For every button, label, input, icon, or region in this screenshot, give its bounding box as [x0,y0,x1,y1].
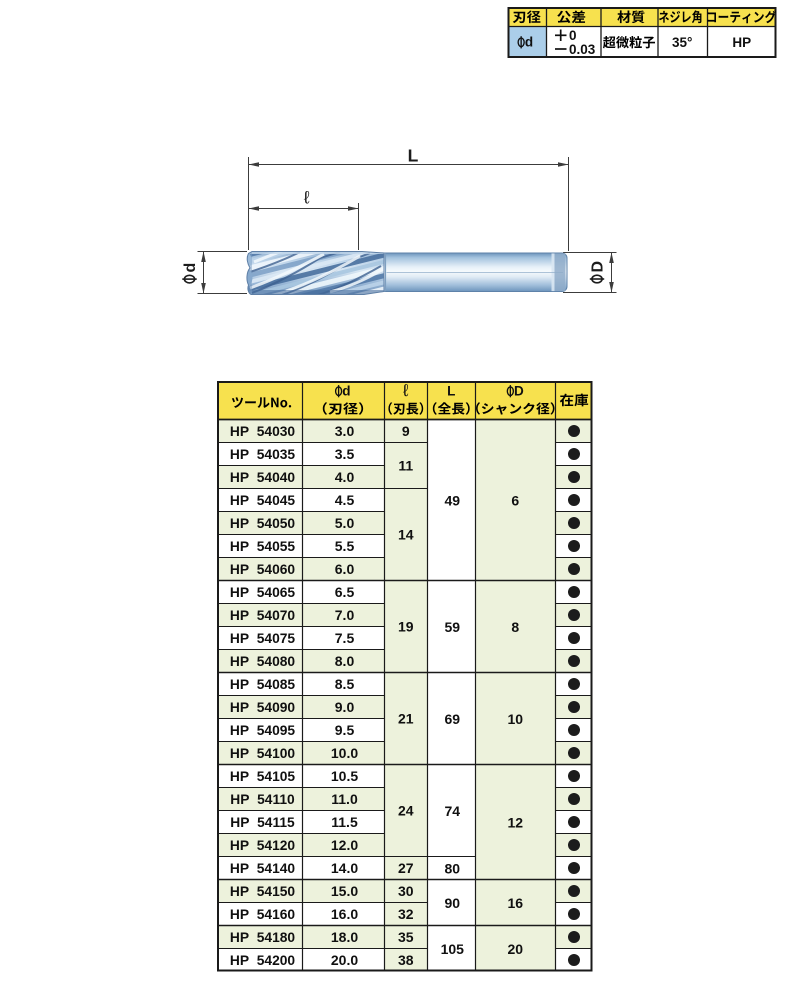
svg-text:18.0: 18.0 [331,929,358,945]
svg-text:27: 27 [398,860,414,876]
svg-text:6.5: 6.5 [335,584,355,600]
svg-text:d: d [525,35,533,50]
svg-text:5.0: 5.0 [335,515,355,531]
svg-text:4.5: 4.5 [335,492,355,508]
svg-text:80: 80 [444,860,460,876]
svg-text:D: D [514,384,524,399]
svg-text:8.5: 8.5 [335,676,355,692]
svg-text:16: 16 [507,895,523,911]
svg-text:38: 38 [398,952,414,968]
svg-text:HP 54040: HP 54040 [230,470,296,485]
svg-text:6: 6 [511,492,519,508]
svg-text:HP 54055: HP 54055 [230,539,296,554]
svg-text:21: 21 [398,710,414,726]
svg-text:HP 54160: HP 54160 [230,907,296,922]
svg-text:HP: HP [732,35,751,50]
svg-text:ℓ: ℓ [304,188,310,208]
svg-text:HP 54070: HP 54070 [230,608,296,623]
svg-text:L: L [408,146,419,166]
svg-text:20.0: 20.0 [331,952,358,968]
svg-text:HP 54090: HP 54090 [230,700,296,715]
svg-text:32: 32 [398,906,414,922]
svg-text:7.0: 7.0 [335,607,355,623]
svg-text:HP 54085: HP 54085 [230,677,296,692]
svg-text:HP 54095: HP 54095 [230,723,296,738]
svg-text:14.0: 14.0 [331,860,358,876]
svg-text:HP 54045: HP 54045 [230,493,296,508]
svg-text:0: 0 [569,28,577,43]
svg-text:d: d [342,384,350,399]
svg-text:HP 54035: HP 54035 [230,447,296,462]
svg-text:8: 8 [511,619,519,635]
svg-text:105: 105 [441,941,465,957]
svg-text:59: 59 [444,619,460,635]
svg-text:7.5: 7.5 [335,630,355,646]
svg-text:HP 54060: HP 54060 [230,562,296,577]
svg-text:6.0: 6.0 [335,561,355,577]
svg-text:11: 11 [398,457,413,473]
svg-text:35: 35 [398,929,414,945]
svg-text:D: D [590,261,607,273]
svg-text:69: 69 [444,711,460,727]
svg-text:HP 54120: HP 54120 [230,838,296,853]
svg-text:9.5: 9.5 [335,722,355,738]
svg-text:HP 54050: HP 54050 [230,516,296,531]
svg-text:HP 54065: HP 54065 [230,585,296,600]
svg-text:49: 49 [444,492,460,508]
svg-text:12: 12 [507,814,523,830]
svg-text:4.0: 4.0 [335,469,355,485]
svg-text:9: 9 [402,423,410,439]
svg-text:10: 10 [507,711,523,727]
svg-text:74: 74 [444,803,460,819]
svg-text:HP 54030: HP 54030 [230,424,296,439]
svg-text:30: 30 [398,883,414,899]
svg-text:d: d [182,263,199,273]
svg-text:11.5: 11.5 [331,814,358,830]
svg-text:8.0: 8.0 [335,653,355,669]
svg-text:HP 54075: HP 54075 [230,631,296,646]
svg-text:HP 54180: HP 54180 [230,930,296,945]
svg-text:16.0: 16.0 [331,906,358,922]
svg-text:35°: 35° [672,35,692,50]
svg-text:HP 54110: HP 54110 [230,792,295,807]
svg-text:12.0: 12.0 [331,837,358,853]
svg-text:5.5: 5.5 [335,538,355,554]
svg-text:90: 90 [444,895,460,911]
svg-text:19: 19 [398,618,414,634]
svg-text:HP 54150: HP 54150 [230,884,296,899]
svg-text:HP 54100: HP 54100 [230,746,296,761]
svg-text:9.0: 9.0 [335,699,355,715]
svg-text:L: L [447,384,455,399]
svg-text:10.0: 10.0 [331,745,358,761]
svg-text:0.03: 0.03 [569,42,596,57]
svg-text:15.0: 15.0 [331,883,358,899]
svg-text:14: 14 [398,526,414,542]
svg-text:11.0: 11.0 [331,791,358,807]
svg-text:24: 24 [398,802,414,818]
svg-text:10.5: 10.5 [331,768,358,784]
svg-text:HP 54105: HP 54105 [230,769,296,784]
svg-text:20: 20 [507,941,523,957]
svg-text:HP 54200: HP 54200 [230,953,296,968]
svg-text:HP 54115: HP 54115 [230,815,295,830]
svg-text:ℓ: ℓ [402,381,409,400]
svg-text:3.5: 3.5 [335,446,355,462]
svg-text:HP 54080: HP 54080 [230,654,296,669]
svg-text:3.0: 3.0 [335,423,355,439]
svg-text:HP 54140: HP 54140 [230,861,296,876]
